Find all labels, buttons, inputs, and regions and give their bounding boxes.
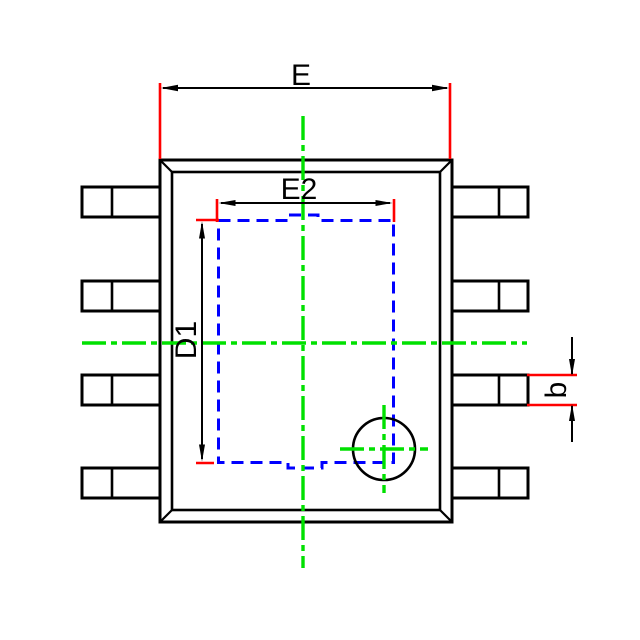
arrowhead-b-bottom (569, 404, 575, 421)
dimension-label-E2: E2 (281, 173, 318, 206)
dimension-label-D1: D1 (170, 321, 203, 359)
arrowhead-E-left (161, 85, 178, 91)
lead-right-1 (451, 187, 528, 217)
lead-left-1 (82, 187, 160, 217)
lead-body (82, 187, 160, 217)
lead-right-3 (451, 375, 528, 405)
lead-left-3 (82, 375, 160, 405)
technical-drawing-page: E E2 D1 b (0, 0, 640, 640)
lead-left-2 (82, 281, 160, 311)
lead-body (451, 187, 528, 217)
lead-body (82, 281, 160, 311)
lead-body (82, 468, 160, 498)
lead-right-4 (451, 468, 528, 498)
lead-body (451, 281, 528, 311)
lead-left-4 (82, 468, 160, 498)
lead-body (82, 375, 160, 405)
package-outline-drawing: E E2 D1 b (0, 0, 640, 640)
lead-right-2 (451, 281, 528, 311)
arrowhead-E-right (432, 85, 449, 91)
lead-body (451, 375, 528, 405)
dimension-label-E: E (291, 59, 311, 92)
arrowhead-b-top (569, 359, 575, 376)
dimension-label-b: b (540, 382, 573, 399)
lead-body (451, 468, 528, 498)
